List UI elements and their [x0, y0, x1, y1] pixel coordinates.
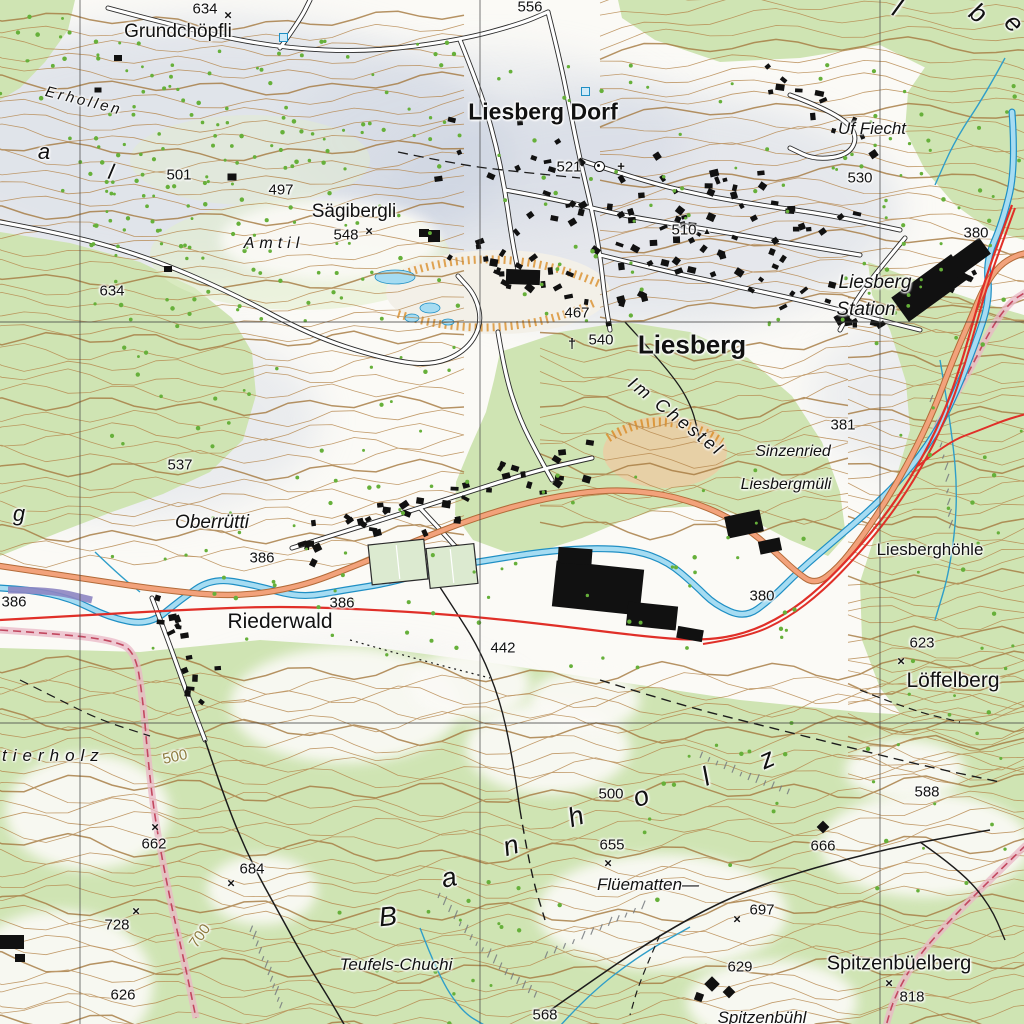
x-marker-1: × — [365, 224, 373, 239]
place-label-riederwald: Riederwald — [227, 610, 332, 634]
place-label-liesberg-station-line1: Liesberg — [839, 272, 912, 294]
x-marker-6: × — [604, 856, 612, 871]
spot-height-spot-666: 666 — [810, 838, 835, 855]
spot-height-spot-386-oberruetti: 386 — [249, 550, 274, 567]
place-label-uf-fiecht: Uf Fiecht — [838, 119, 906, 139]
spot-height-spot-500-banholz: 500 — [598, 786, 623, 803]
spot-height-spot-510: 510 — [671, 222, 696, 239]
place-label-hill-letter-g: g — [13, 501, 25, 527]
spot-height-spot-386-left: 386 — [1, 594, 26, 611]
x-marker-5: × — [132, 904, 140, 919]
place-label-liesberg-dorf: Liesberg Dorf — [468, 99, 618, 126]
place-label-banholz-z: z — [755, 742, 780, 776]
place-label-corner-letter-l: l — [888, 0, 906, 23]
place-label-liesberg: Liesberg — [638, 330, 746, 361]
place-label-banholz-a: a — [438, 861, 459, 894]
church-marker-11 — [594, 161, 605, 172]
spot-height-spot-380-river: 380 — [749, 588, 774, 605]
spot-height-spot-556: 556 — [517, 0, 542, 16]
place-label-sinzenried: Sinzenried — [755, 443, 831, 461]
spot-height-spot-818: 818 — [899, 989, 924, 1006]
place-label-banholz-h: h — [564, 800, 588, 834]
place-label-banholz-l: l — [697, 762, 714, 793]
spot-height-spot-386-riederwald: 386 — [329, 595, 354, 612]
contour-label-contour-700: 700 — [186, 921, 214, 951]
place-label-valley-letter-a: a — [38, 139, 50, 165]
spot-height-spot-537: 537 — [167, 457, 192, 474]
place-label-banholz-o: o — [629, 780, 654, 814]
place-label-corner-letter-b: b — [963, 0, 993, 30]
place-label-liesberg-station-line2: Station — [836, 299, 895, 321]
place-label-flueematten: Flüematten— — [597, 875, 699, 895]
dagger-marker-10: † — [568, 335, 576, 351]
spot-height-spot-501: 501 — [166, 167, 191, 184]
place-label-banholz-n: n — [500, 829, 523, 863]
spot-height-spot-623: 623 — [909, 635, 934, 652]
place-label-spitzenbuehl: Spitzenbühl — [718, 1008, 807, 1024]
place-label-liesberghoehle: Liesberghöhle — [877, 540, 984, 560]
place-label-saegibergli: Sägibergli — [312, 201, 397, 223]
x-marker-8: × — [885, 976, 893, 991]
triangle-marker-9: ▲ — [703, 226, 712, 236]
spot-height-spot-497: 497 — [268, 182, 293, 199]
spot-height-spot-381: 381 — [830, 417, 855, 434]
spot-height-spot-442: 442 — [490, 640, 515, 657]
spot-height-spot-568: 568 — [532, 1007, 557, 1024]
spot-height-spot-540: 540 — [588, 332, 613, 349]
place-label-erhollen: Erhollen — [44, 83, 125, 119]
map-labels-overlay: GrundchöpfliLiesberg DorfSägibergliAmtil… — [0, 0, 1024, 1024]
spot-height-spot-655: 655 — [599, 837, 624, 854]
x-marker-3: × — [151, 820, 159, 835]
place-label-im-chestel: Im Chestel — [624, 373, 728, 461]
spot-height-spot-626: 626 — [110, 987, 135, 1004]
place-label-liesbergmueli: Liesbergmüli — [741, 476, 832, 494]
contour-label-contour-500: 500 — [161, 746, 189, 768]
place-label-teufels-chuchi: Teufels-Chuchi — [340, 955, 453, 975]
place-label-spitzenbueelberg: Spitzenbüelberg — [827, 953, 972, 976]
spot-height-spot-467: 467 — [564, 305, 589, 322]
spot-height-spot-548: 548 — [333, 227, 358, 244]
spot-height-spot-380-station: 380 — [963, 225, 988, 242]
spot-height-spot-629: 629 — [727, 959, 752, 976]
bluesquare-marker-13 — [279, 33, 288, 42]
spot-height-spot-521: 521 — [556, 159, 581, 176]
place-label-banholz-b: B — [377, 901, 398, 934]
place-label-corner-letter-e: e — [998, 7, 1024, 39]
place-label-oberruetti: Oberrütti — [175, 512, 249, 534]
place-label-loeffelberg: Löffelberg — [906, 669, 999, 693]
x-marker-0: × — [224, 8, 232, 23]
x-marker-7: × — [733, 912, 741, 927]
x-marker-2: × — [897, 654, 905, 669]
topographic-map[interactable]: GrundchöpfliLiesberg DorfSägibergliAmtil… — [0, 0, 1024, 1024]
bluesquare-marker-14 — [581, 87, 590, 96]
spot-height-spot-634-left: 634 — [99, 283, 124, 300]
spot-height-spot-697: 697 — [749, 902, 774, 919]
spot-height-spot-662: 662 — [141, 836, 166, 853]
plus-marker-12: + — [617, 159, 625, 174]
spot-height-spot-684: 684 — [239, 861, 264, 878]
place-label-valley-letter-l: l — [106, 159, 116, 185]
place-label-tierholz: tierholz — [2, 746, 105, 766]
place-label-amtil: Amtil — [244, 235, 305, 253]
spot-height-spot-634-top: 634 — [192, 1, 217, 18]
spot-height-spot-728: 728 — [104, 917, 129, 934]
spot-height-spot-530: 530 — [847, 170, 872, 187]
spot-height-spot-588: 588 — [914, 784, 939, 801]
x-marker-4: × — [227, 876, 235, 891]
place-label-grundchoepfli: Grundchöpfli — [124, 21, 232, 43]
